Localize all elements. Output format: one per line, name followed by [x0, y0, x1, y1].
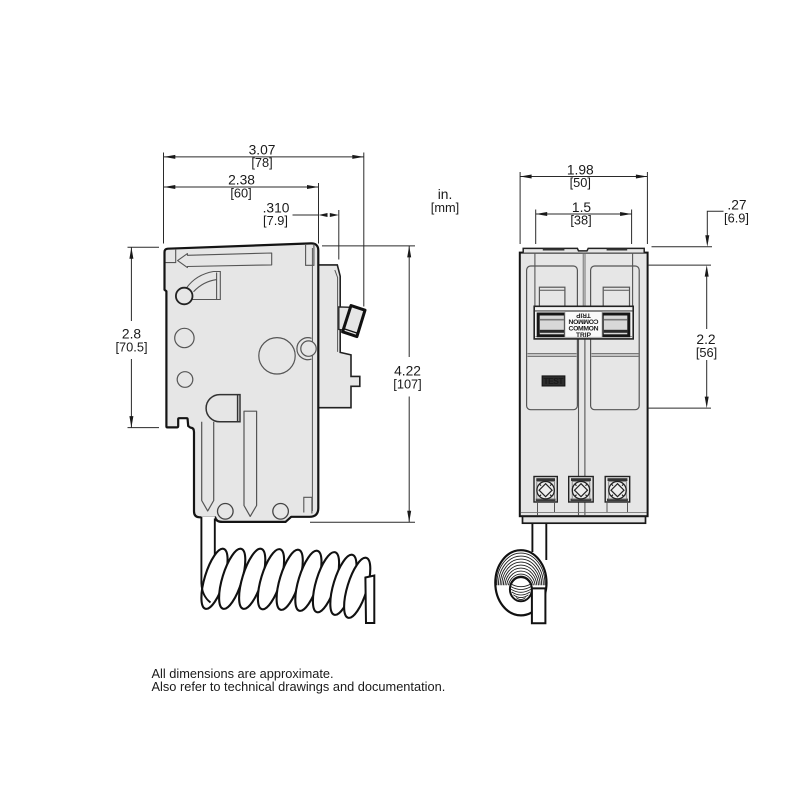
svg-text:TRIP: TRIP — [575, 311, 590, 318]
svg-text:[70.5]: [70.5] — [115, 340, 147, 355]
svg-text:[56]: [56] — [696, 345, 717, 360]
svg-text:[6.9]: [6.9] — [724, 211, 749, 226]
svg-text:Also refer to technical drawin: Also refer to technical drawings and doc… — [152, 679, 446, 694]
svg-text:TEST: TEST — [544, 376, 565, 386]
svg-text:[38]: [38] — [570, 213, 591, 228]
svg-text:[7.9]: [7.9] — [263, 213, 288, 228]
svg-text:COMMON: COMMON — [568, 318, 598, 325]
svg-text:TRIP: TRIP — [576, 332, 592, 339]
svg-text:[mm]: [mm] — [431, 200, 459, 215]
svg-text:[78]: [78] — [251, 155, 272, 170]
svg-text:[50]: [50] — [570, 175, 591, 190]
svg-text:[60]: [60] — [230, 186, 251, 201]
svg-text:[107]: [107] — [393, 377, 421, 392]
